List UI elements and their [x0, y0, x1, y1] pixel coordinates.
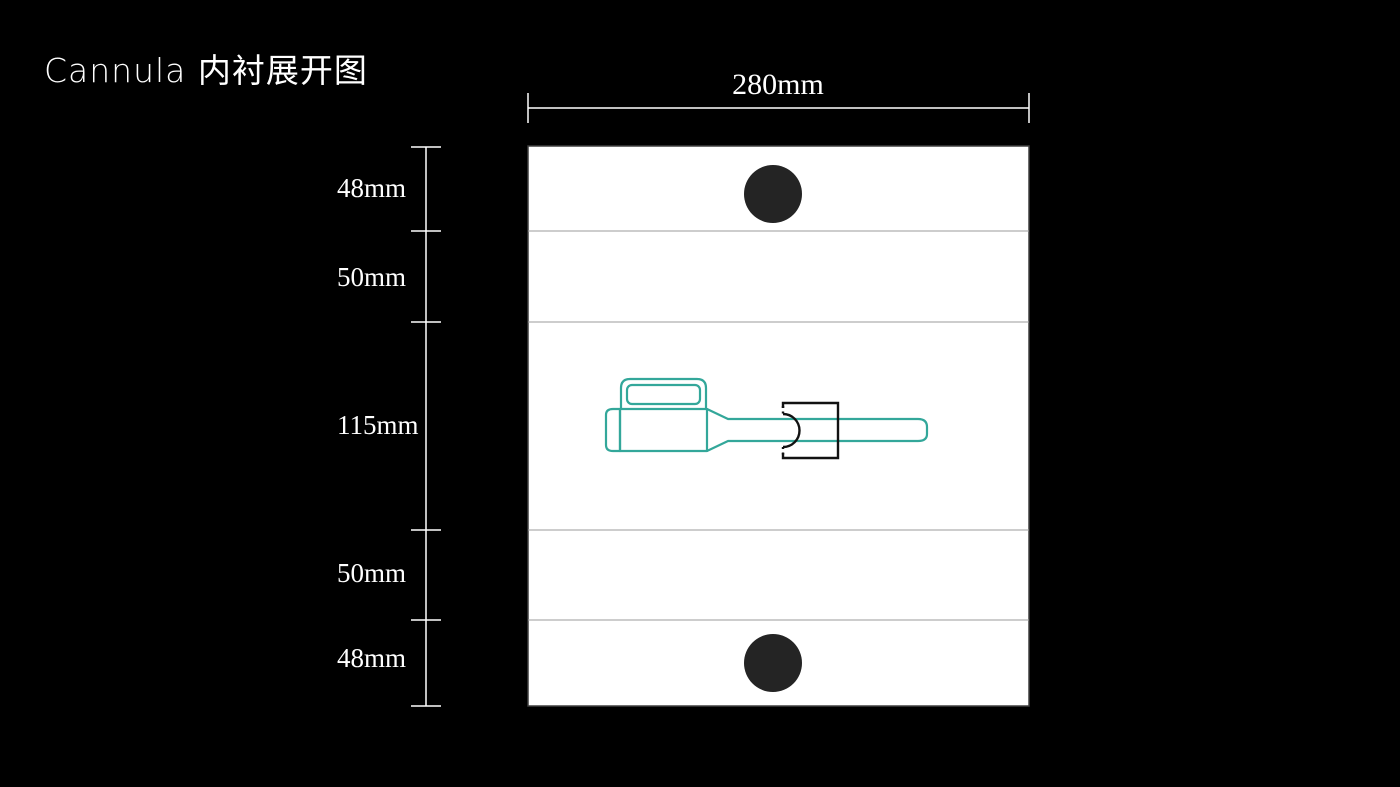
left-dimension: 48mm 50mm 115mm 50mm 48mm — [337, 147, 441, 706]
hang-hole-bottom — [744, 634, 802, 692]
top-dimension: 280mm — [528, 68, 1029, 123]
section-height-label: 48mm — [337, 173, 406, 203]
width-dimension-label: 280mm — [732, 68, 824, 101]
section-height-label: 50mm — [337, 262, 406, 292]
section-height-label: 115mm — [337, 410, 419, 440]
page-canvas: Cannula 内衬展开图 280mm 48mm 50mm 115mm 50mm… — [0, 0, 1400, 787]
section-height-label: 48mm — [337, 643, 406, 673]
section-height-label: 50mm — [337, 558, 406, 588]
liner-panel — [528, 146, 1029, 706]
liner-unfold-diagram: 280mm 48mm 50mm 115mm 50mm 48mm — [0, 0, 1400, 787]
hang-hole-top — [744, 165, 802, 223]
panel-outline — [528, 146, 1029, 706]
